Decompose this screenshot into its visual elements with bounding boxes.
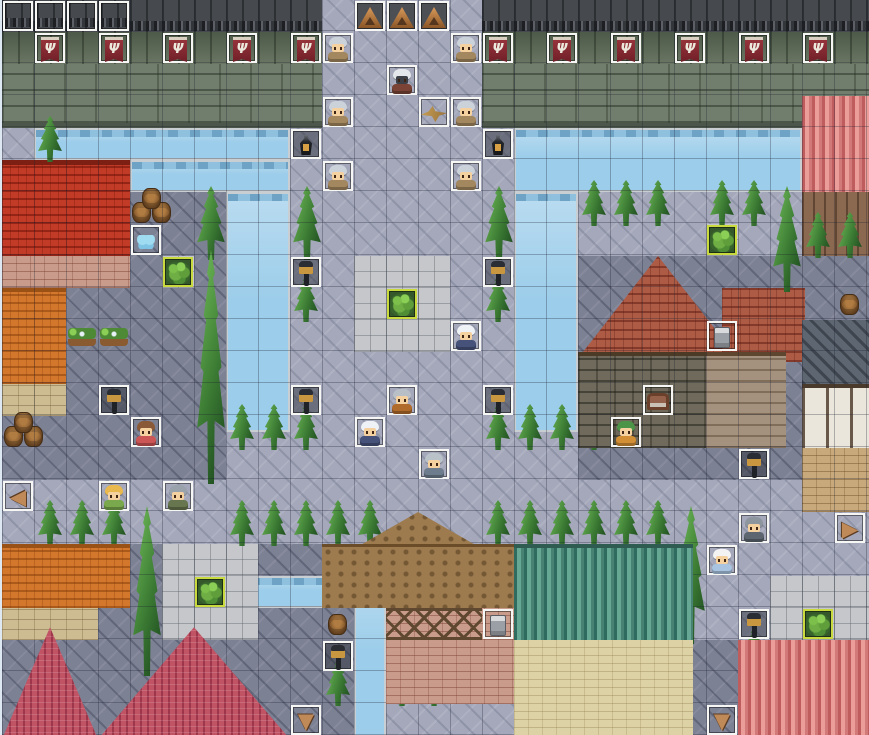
banner-icon: Ψ (105, 37, 123, 62)
roof-red-region (2, 160, 130, 256)
event-hatch[interactable] (643, 385, 673, 415)
event-nun[interactable] (451, 321, 481, 351)
barrels3-decor (2, 416, 66, 448)
npc-nun-sprite (358, 421, 382, 447)
npc-nun-sprite (454, 325, 478, 351)
event-chimney-ev[interactable] (707, 321, 737, 351)
event-lamp[interactable] (483, 385, 513, 415)
gate-spike-icon (422, 7, 446, 28)
battlement-icon (101, 18, 127, 27)
npc-knight-sprite (326, 37, 350, 63)
event-spike[interactable] (419, 1, 449, 31)
event-lamp[interactable] (483, 257, 513, 287)
water-region (514, 192, 578, 432)
sign-left-icon: ◀ (5, 485, 31, 509)
event-bush[interactable] (195, 577, 225, 607)
banner-icon: Ψ (41, 37, 59, 62)
roof-darkgray-region (802, 320, 869, 384)
roof-orange-region (2, 288, 66, 384)
battlement-icon (5, 18, 31, 27)
event-lamp[interactable] (739, 449, 769, 479)
event-sign-right[interactable]: ▶ (835, 513, 865, 543)
garden-bush-icon (198, 582, 222, 604)
roof-salmon-region (738, 640, 869, 735)
street-lamp-icon (746, 613, 762, 639)
furnace-hatch-icon (647, 393, 669, 410)
npc-villager-sprite (614, 421, 638, 447)
event-sign-down[interactable]: ▼ (707, 705, 737, 735)
event-nun[interactable] (355, 417, 385, 447)
event-butterfly[interactable] (131, 225, 161, 255)
street-lamp-icon (490, 261, 506, 287)
npc-guard-sprite (166, 485, 190, 511)
npc-armor-soldier-sprite (742, 517, 766, 543)
npc-knight-sprite (326, 165, 350, 191)
event-knight[interactable] (451, 33, 481, 63)
event-banner[interactable]: Ψ (35, 33, 65, 63)
event-lamp[interactable] (323, 641, 353, 671)
event-knight[interactable] (451, 161, 481, 191)
roof-brown-region (322, 544, 546, 608)
canvas-edge (0, 0, 2, 735)
gate-spike-icon (390, 7, 414, 28)
event-warrior[interactable] (387, 385, 417, 415)
wall-white-region (802, 384, 869, 448)
event-spike[interactable] (387, 1, 417, 31)
event-banner[interactable]: Ψ (163, 33, 193, 63)
barrel-decor (322, 608, 354, 640)
event-soldier[interactable] (419, 449, 449, 479)
street-lamp-icon (298, 261, 314, 287)
event-bush[interactable] (803, 609, 833, 639)
butterfly-icon (137, 235, 155, 249)
event-knight[interactable] (323, 161, 353, 191)
npc-knight-sprite (454, 165, 478, 191)
event-knight[interactable] (323, 33, 353, 63)
roof-green-region (514, 544, 693, 640)
wall-tan-region (2, 384, 66, 416)
planter-decor (98, 320, 130, 352)
water-region (226, 192, 290, 432)
npc-kid-sprite (102, 485, 126, 511)
hawk-icon (421, 105, 447, 123)
sign-down-icon: ▼ (709, 709, 735, 733)
event-maid[interactable] (131, 417, 161, 447)
event-lamp[interactable] (291, 385, 321, 415)
timber-region (386, 608, 482, 640)
event-bush[interactable] (707, 225, 737, 255)
event-bush[interactable] (163, 257, 193, 287)
event-armor-soldier[interactable] (739, 513, 769, 543)
banner-icon: Ψ (169, 37, 187, 62)
npc-maid-sprite (134, 421, 158, 447)
wall-brick-region (2, 256, 130, 288)
sign-right-icon: ▶ (837, 517, 863, 541)
event-lamp[interactable] (291, 257, 321, 287)
banner-icon: Ψ (233, 37, 251, 62)
street-lamp-icon (330, 645, 346, 671)
event-guard[interactable] (163, 481, 193, 511)
banner-icon: Ψ (553, 37, 571, 62)
map-canvas[interactable]: ΨΨΨΨΨΨΨΨΨΨΨ◀▶▼▼ (0, 0, 869, 735)
event-bell[interactable] (291, 129, 321, 159)
event-bell[interactable] (483, 129, 513, 159)
npc-warrior-sprite (390, 389, 414, 415)
garden-bush-icon (166, 262, 190, 284)
banner-icon: Ψ (617, 37, 635, 62)
npc-bonnet-girl-sprite (710, 549, 734, 575)
event-battlement[interactable] (35, 1, 65, 31)
event-banner[interactable]: Ψ (227, 33, 257, 63)
hanging-lantern-icon (298, 135, 314, 155)
event-banner[interactable]: Ψ (675, 33, 705, 63)
wall-cream-region (514, 640, 693, 735)
event-battlement[interactable] (99, 1, 129, 31)
event-battlement[interactable] (67, 1, 97, 31)
event-banner[interactable]: Ψ (803, 33, 833, 63)
event-chimney-ev[interactable] (483, 609, 513, 639)
npc-knight-sprite (326, 101, 350, 127)
npc-soldier-sprite (422, 453, 446, 479)
hanging-lantern-icon (490, 135, 506, 155)
event-kid[interactable] (99, 481, 129, 511)
roof-salmon-region (802, 96, 869, 192)
banner-icon: Ψ (297, 37, 315, 62)
banner-icon: Ψ (809, 37, 827, 62)
event-knight[interactable] (323, 97, 353, 127)
event-banner[interactable]: Ψ (739, 33, 769, 63)
battlement-icon (37, 18, 63, 27)
event-sign-down[interactable]: ▼ (291, 705, 321, 735)
wall-top-region (482, 0, 869, 32)
event-bonnet-girl[interactable] (707, 545, 737, 575)
event-bush[interactable] (387, 289, 417, 319)
street-lamp-icon (298, 389, 314, 415)
event-death-knight[interactable] (387, 65, 417, 95)
barrels3-decor (130, 192, 194, 224)
gate-spike-icon (358, 7, 382, 28)
event-knight[interactable] (451, 97, 481, 127)
chimney-icon (490, 615, 506, 636)
event-sign-left[interactable]: ◀ (3, 481, 33, 511)
banner-icon: Ψ (681, 37, 699, 62)
event-lamp[interactable] (739, 609, 769, 639)
event-spike[interactable] (355, 1, 385, 31)
event-banner[interactable]: Ψ (547, 33, 577, 63)
npc-knight-sprite (454, 37, 478, 63)
street-lamp-icon (106, 389, 122, 415)
event-banner[interactable]: Ψ (291, 33, 321, 63)
event-banner[interactable]: Ψ (99, 33, 129, 63)
sign-down-icon: ▼ (293, 709, 319, 733)
wall-smid-region (706, 352, 786, 448)
event-lamp[interactable] (99, 385, 129, 415)
barrel-decor (834, 288, 866, 320)
roof-orange-region (2, 544, 130, 608)
planter-decor (66, 320, 98, 352)
event-hawk[interactable] (419, 97, 449, 127)
garden-bush-icon (806, 614, 830, 636)
garden-bush-icon (390, 294, 414, 316)
street-lamp-icon (746, 453, 762, 479)
banner-icon: Ψ (745, 37, 763, 62)
chimney-icon (714, 327, 730, 348)
water-region (34, 128, 290, 160)
event-battlement[interactable] (3, 1, 33, 31)
event-banner[interactable]: Ψ (611, 33, 641, 63)
npc-knight-sprite (454, 101, 478, 127)
npc-death-knight-sprite (390, 69, 414, 95)
wall-brick2-region (802, 448, 869, 512)
banner-icon: Ψ (489, 37, 507, 62)
battlement-icon (69, 18, 95, 27)
event-villager[interactable] (611, 417, 641, 447)
event-banner[interactable]: Ψ (483, 33, 513, 63)
wall-sdark-region (578, 352, 706, 448)
street-lamp-icon (490, 389, 506, 415)
garden-bush-icon (710, 230, 734, 252)
